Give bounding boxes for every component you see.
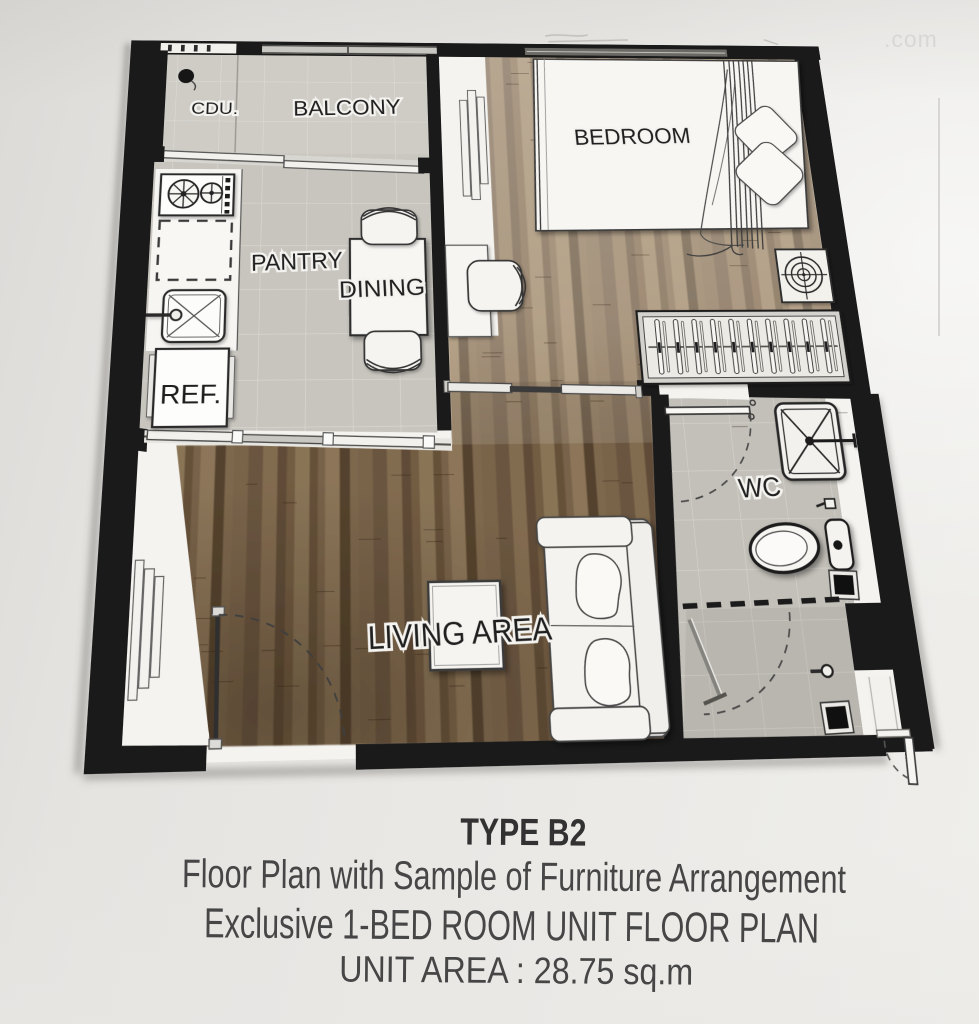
svg-text:BEDROOM: BEDROOM bbox=[573, 123, 692, 150]
svg-text:REF.: REF. bbox=[159, 379, 222, 409]
svg-text:WC: WC bbox=[736, 471, 783, 504]
svg-text:TYPE B2: TYPE B2 bbox=[460, 812, 586, 855]
svg-text:Floor Plan with Sample of Furn: Floor Plan with Sample of Furniture Arra… bbox=[182, 852, 846, 902]
svg-text:BALCONY: BALCONY bbox=[293, 95, 402, 121]
svg-text:PANTRY: PANTRY bbox=[251, 247, 344, 277]
svg-text:Exclusive 1-BED ROOM UNIT FLOO: Exclusive 1-BED ROOM UNIT FLOOR PLAN bbox=[204, 899, 819, 951]
svg-text:CDU.: CDU. bbox=[191, 99, 239, 118]
svg-text:DINING: DINING bbox=[339, 273, 426, 303]
svg-text:UNIT AREA : 28.75 sq.m: UNIT AREA : 28.75 sq.m bbox=[339, 948, 693, 992]
